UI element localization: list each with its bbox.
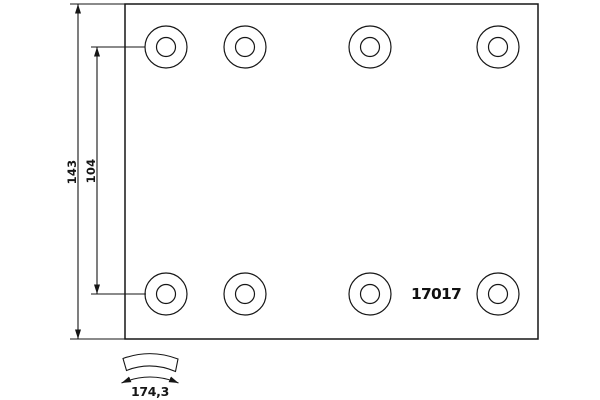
rivet-hole-inner [489,285,508,304]
dimension-label-arc-length: 174,3 [131,384,169,399]
technical-drawing-page: 143 104 17017 174,3 [0,0,600,400]
brake-lining-drawing: 143 104 17017 174,3 [0,0,600,400]
rivet-hole-outer [477,26,519,68]
rivet-hole-outer [477,273,519,315]
rivet-hole-outer [145,273,187,315]
dimension-label-overall-width: 143 [65,160,79,185]
rivet-hole-inner [489,38,508,57]
rivet-hole-outer [224,273,266,315]
rivet-hole-inner [157,38,176,57]
rivet-hole-outer [145,26,187,68]
lining-arc-section-symbol [123,354,178,372]
dimension-label-hole-spacing: 104 [84,159,98,184]
rivet-hole-inner [157,285,176,304]
rivet-holes [145,26,519,315]
rivet-hole-outer [349,26,391,68]
rivet-hole-inner [236,285,255,304]
part-number-label: 17017 [411,285,461,303]
rivet-hole-inner [236,38,255,57]
rivet-hole-outer [224,26,266,68]
dimension-arc-length [122,377,179,383]
rivet-hole-inner [361,285,380,304]
rivet-hole-inner [361,38,380,57]
rivet-hole-outer [349,273,391,315]
